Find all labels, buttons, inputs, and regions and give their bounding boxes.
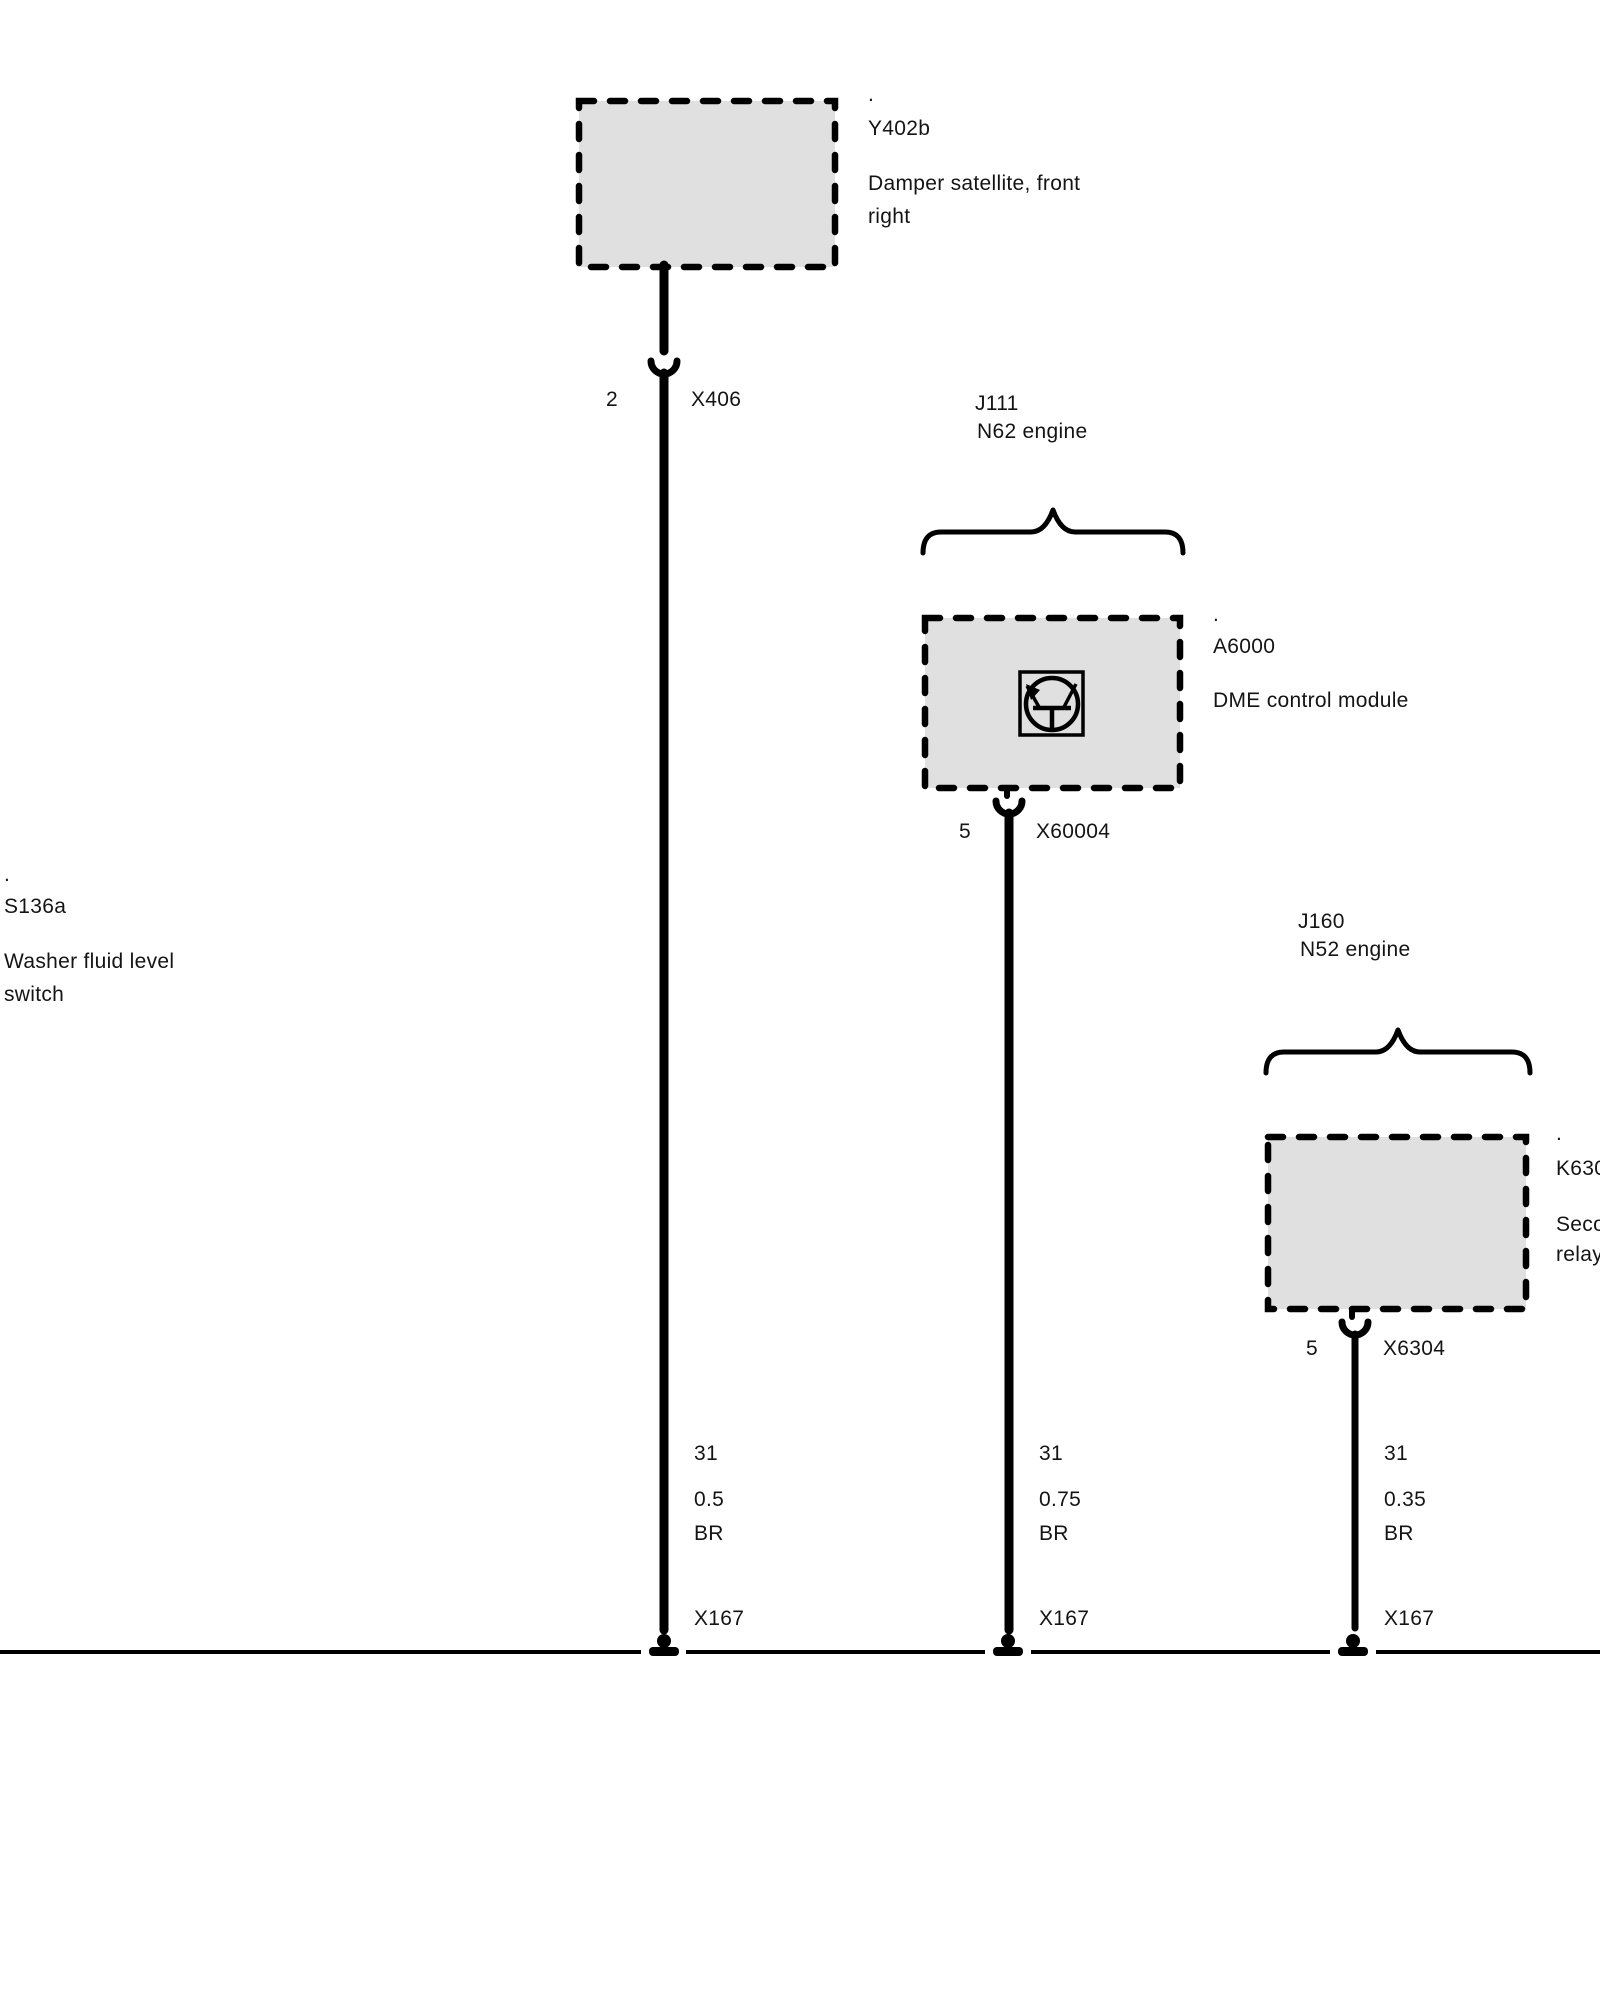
x406-name: X406 [691,387,741,413]
secondary-relay-box[interactable] [1268,1137,1526,1309]
wire-2-size: 0.75 [1039,1487,1081,1513]
wire-3-circuit: 31 [1384,1441,1408,1467]
j160-engine: N52 engine [1300,937,1410,963]
damper-desc1: Damper satellite, front [868,171,1080,197]
wire-1-size: 0.5 [694,1487,724,1513]
brace-j111-n62 [923,510,1183,553]
j111-engine: N62 engine [977,419,1087,445]
damper-id: Y402b [868,116,930,142]
x406-pin: 2 [606,387,618,413]
wire-3-size: 0.35 [1384,1487,1426,1513]
x6304-pin: 5 [1306,1336,1318,1362]
relay-id: K6300 [1556,1156,1600,1182]
relay-desc1: Secondary [1556,1212,1600,1238]
washer-switch-desc1: Washer fluid level [4,949,174,975]
damper-desc2: right [868,204,910,230]
wire-2-color: BR [1039,1521,1069,1547]
wire-1-ground: X167 [694,1606,744,1632]
x6304-name: X6304 [1383,1336,1445,1362]
wire-1-color: BR [694,1521,724,1547]
dme-control-module-box[interactable] [925,618,1180,788]
damper-satellite-box[interactable] [579,101,835,267]
ground-contact-3 [1338,1634,1368,1656]
x60004-name: X60004 [1036,819,1110,845]
wire-2-circuit: 31 [1039,1441,1063,1467]
wiring-diagram-graphics [0,0,1600,2000]
ground-contact-2 [993,1634,1023,1656]
washer-switch-dot: . [4,862,10,888]
washer-switch-desc2: switch [4,982,64,1008]
j111-id: J111 [975,391,1019,417]
wire-1-circuit: 31 [694,1441,718,1467]
wire-3-ground: X167 [1384,1606,1434,1632]
dme-dot: . [1213,602,1219,628]
brace-j160-n52 [1266,1030,1530,1073]
j160-id: J160 [1298,909,1345,935]
dme-id: A6000 [1213,634,1275,660]
x60004-pin: 5 [959,819,971,845]
wire-2-ground: X167 [1039,1606,1089,1632]
damper-dot: . [868,82,874,108]
wire-3-color: BR [1384,1521,1414,1547]
wiring-diagram-canvas: . Y402b Damper satellite, front right 2 … [0,0,1600,2000]
dme-desc1: DME control module [1213,688,1409,714]
ground-contact-1 [649,1634,679,1656]
relay-desc2: relay [1556,1242,1600,1268]
washer-switch-id: S136a [4,894,66,920]
relay-dot: . [1556,1121,1562,1147]
